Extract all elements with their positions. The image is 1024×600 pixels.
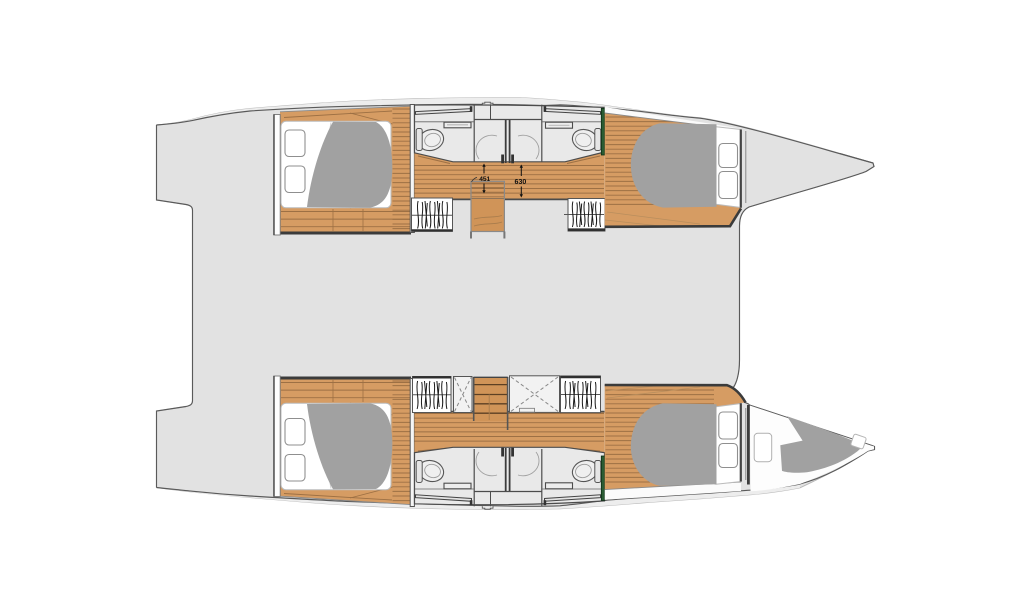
svg-text:630: 630 [515, 179, 527, 186]
svg-text:451: 451 [479, 176, 490, 183]
